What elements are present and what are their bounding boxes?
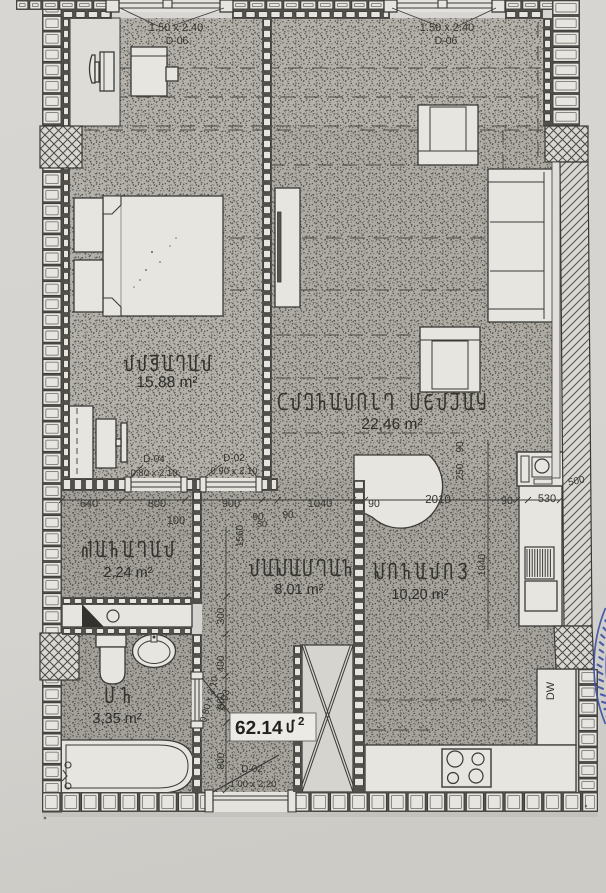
svg-text:400: 400 xyxy=(216,655,227,672)
svg-text:1.00 x 2.20: 1.00 x 2.20 xyxy=(229,779,276,790)
svg-text:800: 800 xyxy=(148,498,166,510)
svg-text:90: 90 xyxy=(368,498,380,510)
svg-text:DW: DW xyxy=(545,681,557,700)
svg-text:0.80 x 2.10: 0.80 x 2.10 xyxy=(130,468,177,479)
svg-text:15,88 m²: 15,88 m² xyxy=(136,374,197,391)
svg-text:250: 250 xyxy=(455,463,466,480)
svg-text:800: 800 xyxy=(216,752,227,769)
svg-text:D-06: D-06 xyxy=(435,35,458,47)
svg-text:1560: 1560 xyxy=(235,524,246,547)
svg-text:900: 900 xyxy=(222,498,240,510)
svg-text:100: 100 xyxy=(167,515,185,527)
svg-text:90: 90 xyxy=(282,510,294,521)
svg-text:10,20 m²: 10,20 m² xyxy=(391,587,448,603)
svg-text:1040: 1040 xyxy=(308,498,332,510)
svg-text:2010: 2010 xyxy=(425,494,451,506)
svg-text:D-02: D-02 xyxy=(241,764,263,775)
svg-text:D-06: D-06 xyxy=(166,35,189,47)
svg-text:D-04: D-04 xyxy=(143,454,165,465)
svg-text:640: 640 xyxy=(80,498,98,510)
svg-text:62.14: 62.14 xyxy=(235,718,283,739)
svg-text:1.50 x 2.40: 1.50 x 2.40 xyxy=(149,22,203,34)
svg-text:300: 300 xyxy=(216,607,227,624)
svg-text:90: 90 xyxy=(455,441,466,453)
svg-text:1.50 x 2.40: 1.50 x 2.40 xyxy=(420,22,474,34)
svg-text:2,24 m²: 2,24 m² xyxy=(103,565,152,581)
svg-text:90: 90 xyxy=(501,495,513,507)
svg-text:530: 530 xyxy=(538,493,556,505)
svg-text:8,01 m²: 8,01 m² xyxy=(274,582,323,598)
svg-text:22,46 m²: 22,46 m² xyxy=(361,416,422,433)
svg-text:50: 50 xyxy=(257,519,267,529)
svg-text:D-02: D-02 xyxy=(223,453,245,464)
svg-text:3,35 m²: 3,35 m² xyxy=(92,711,141,727)
svg-text:2: 2 xyxy=(298,716,304,728)
svg-text:1040: 1040 xyxy=(477,553,488,576)
